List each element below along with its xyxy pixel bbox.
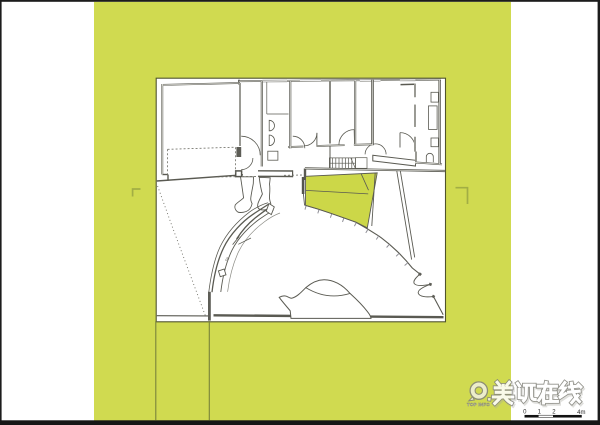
svg-text:TOP INFO: TOP INFO [467,402,490,407]
